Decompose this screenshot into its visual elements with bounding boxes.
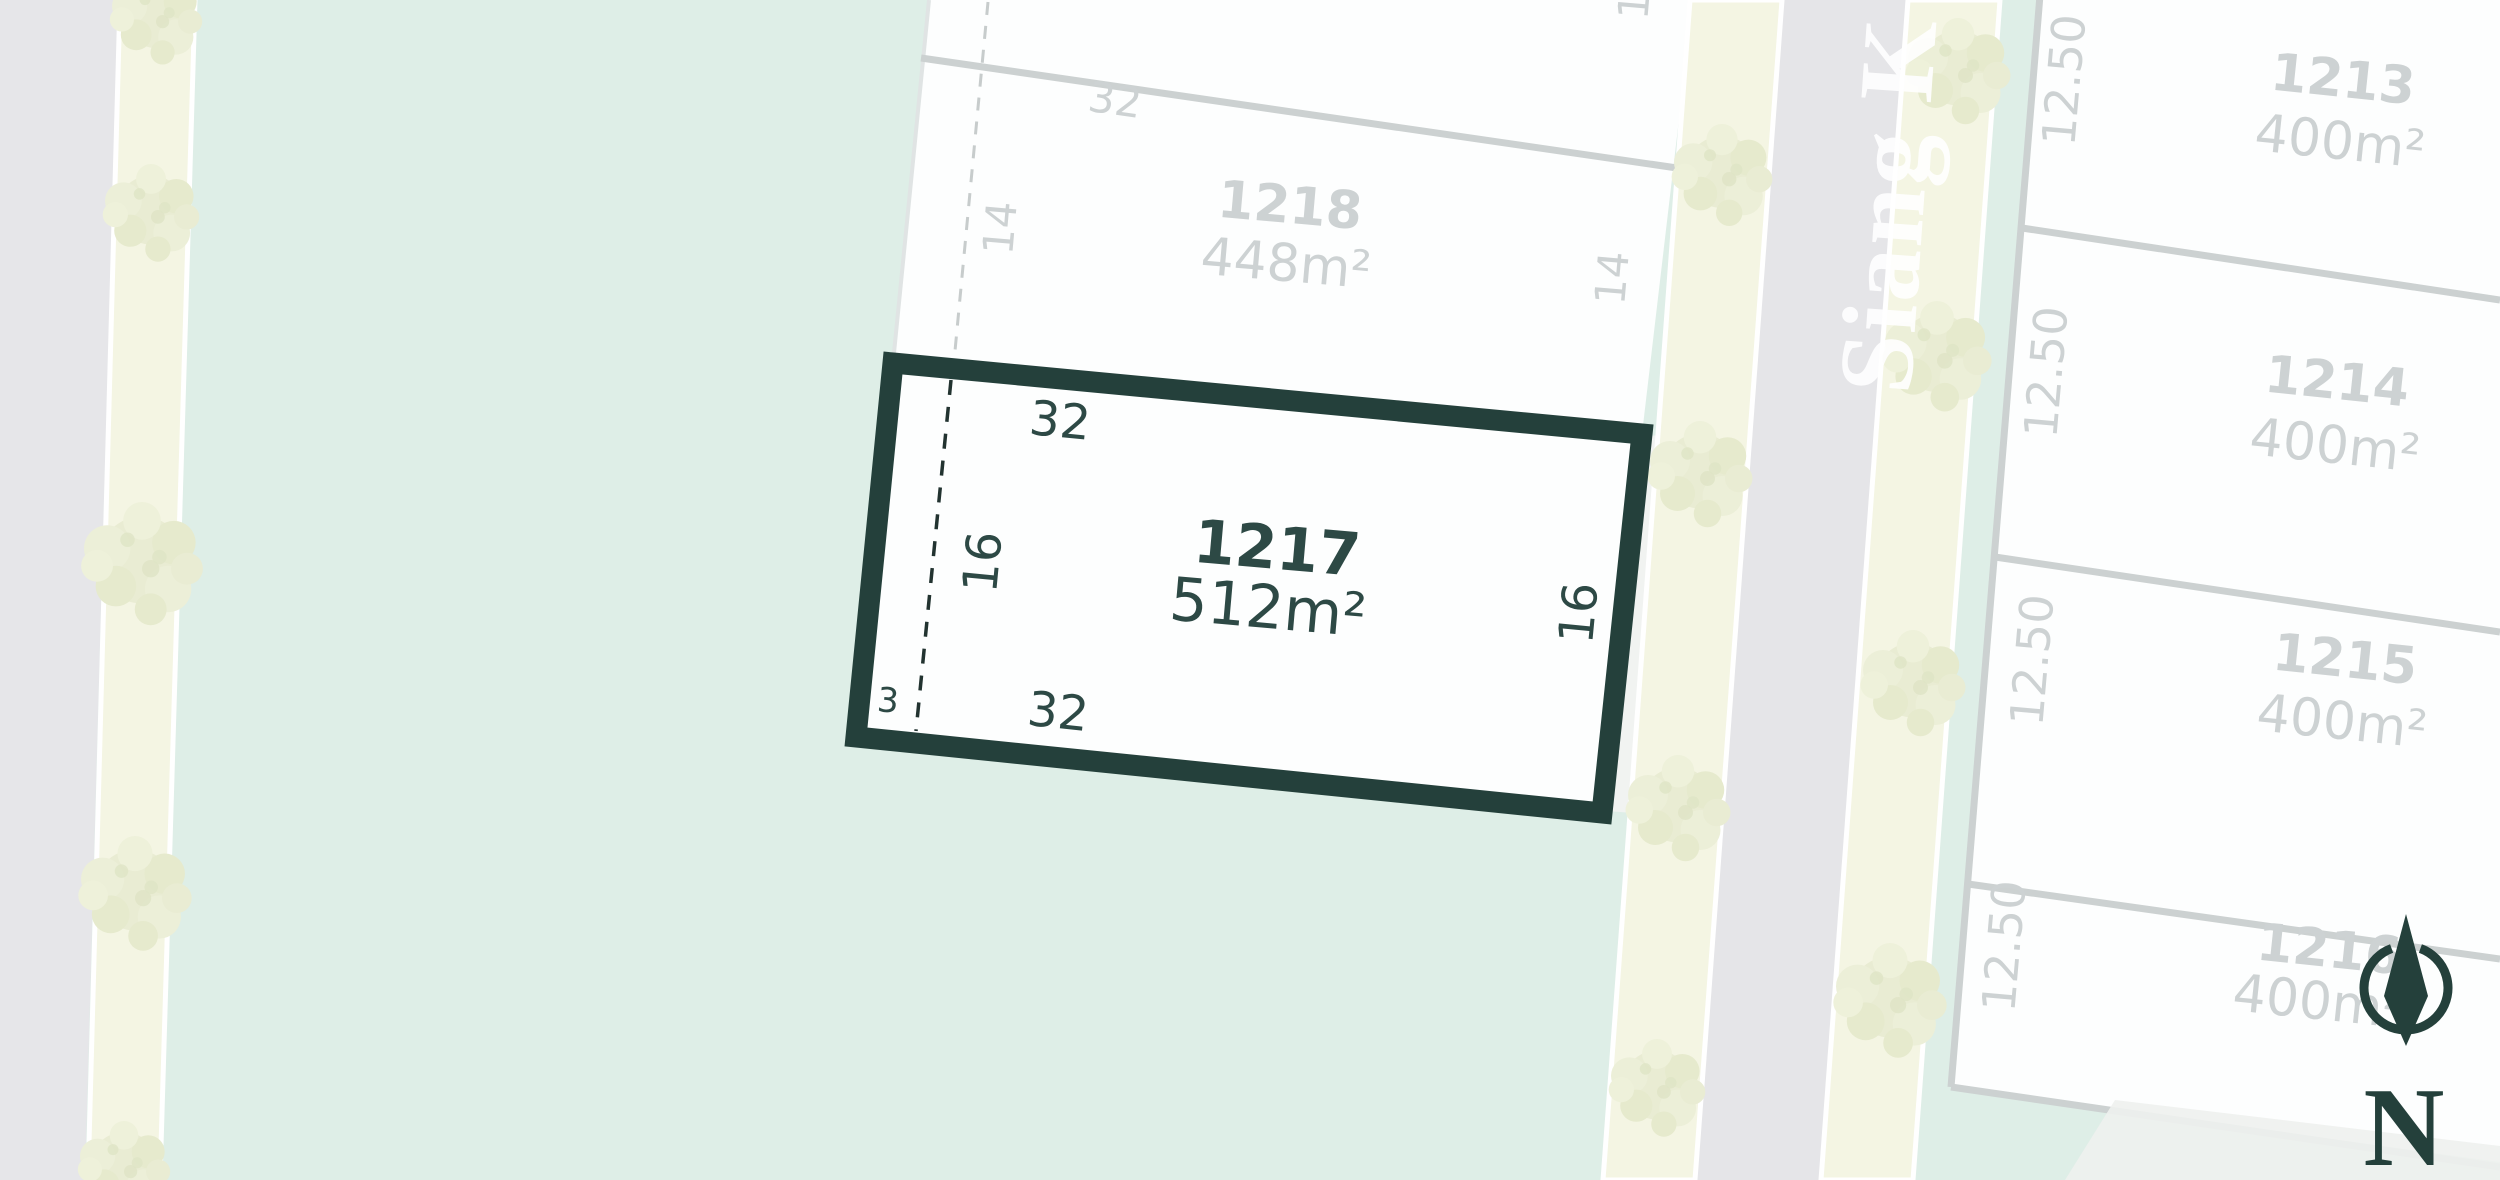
- lot-1215-frontage: 12.50: [1999, 592, 2064, 728]
- lot-1213-frontage: 12.50: [2031, 12, 2096, 148]
- map-canvas: 32 14 1218 448m² 14 1 Siang K 1213 400m²…: [0, 0, 2500, 1180]
- lot-1214-frontage: 12.50: [2013, 304, 2078, 440]
- estate-map: 32 14 1218 448m² 14 1 Siang K 1213 400m²…: [0, 0, 2500, 1180]
- lot-1217-dim-right: 16: [1548, 580, 1610, 646]
- lot-1218-dim-left: 14: [973, 199, 1026, 257]
- upper-lot-partial-dim: 1: [1608, 0, 1659, 21]
- lot-1217-group[interactable]: 32 16 1217 512m² 16 32 3: [856, 363, 1642, 813]
- lot-1216-frontage: 12.50: [1971, 878, 2036, 1014]
- lot-1217-dim-top: 32: [1027, 390, 1093, 452]
- lot-1217-dim-left: 16: [952, 529, 1014, 595]
- lot-1218-dim-top: 32: [1085, 72, 1145, 128]
- lot-1217-dim-corner: 3: [875, 680, 900, 722]
- north-label: N: [2364, 1066, 2445, 1180]
- lot-1217-dim-bottom: 32: [1025, 681, 1092, 743]
- lot-1218-dim-right: 14: [1585, 249, 1638, 307]
